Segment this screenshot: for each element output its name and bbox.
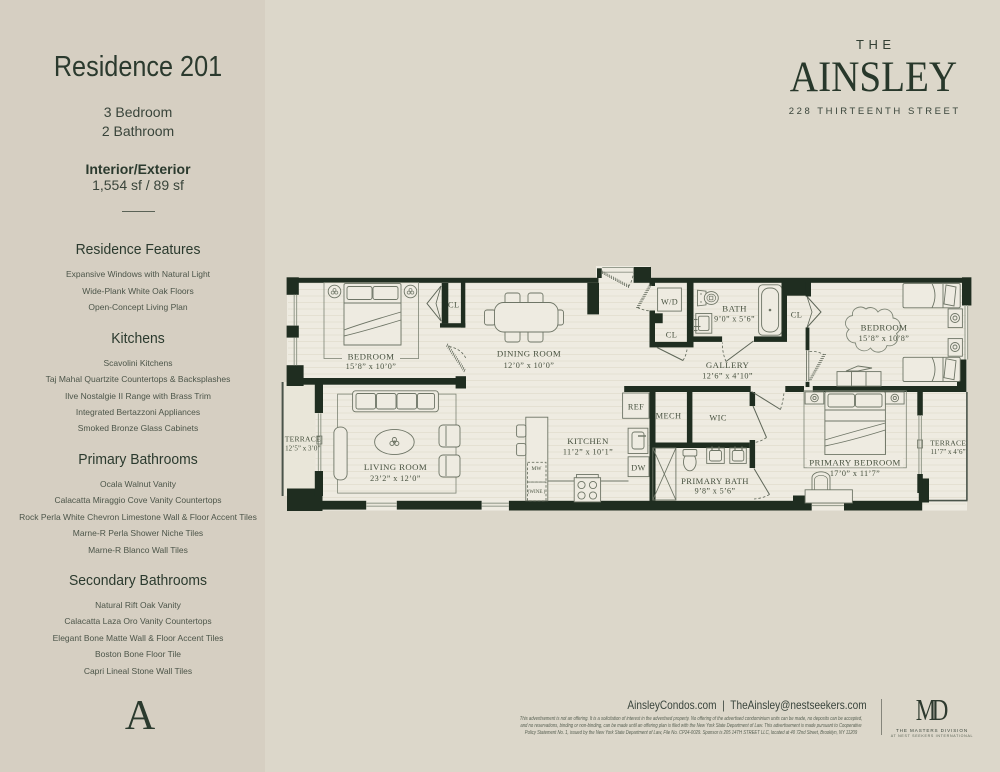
svg-text:TERRACE: TERRACE	[285, 435, 321, 444]
svg-text:12’0” x 10’0”: 12’0” x 10’0”	[504, 361, 555, 370]
svg-text:9’0” x 5’6”: 9’0” x 5’6”	[714, 315, 755, 324]
svg-text:W/D: W/D	[661, 298, 678, 307]
svg-text:MW: MW	[532, 466, 543, 472]
svg-text:MECH: MECH	[656, 412, 682, 421]
svg-text:KITCHEN: KITCHEN	[567, 436, 609, 446]
svg-text:DW: DW	[631, 464, 645, 473]
svg-text:DINING ROOM: DINING ROOM	[497, 349, 561, 359]
svg-text:11’7” x 4’6”: 11’7” x 4’6”	[931, 448, 966, 456]
svg-text:LIVING ROOM: LIVING ROOM	[364, 462, 427, 472]
svg-text:15’8” x 10’0”: 15’8” x 10’0”	[346, 362, 397, 371]
svg-text:CL: CL	[666, 331, 678, 340]
svg-text:PRIMARY BEDROOM: PRIMARY BEDROOM	[809, 458, 900, 468]
svg-text:15’8” x 10’8”: 15’8” x 10’8”	[859, 334, 910, 343]
svg-text:BEDROOM: BEDROOM	[861, 323, 908, 333]
svg-text:BEDROOM: BEDROOM	[348, 352, 395, 362]
svg-text:BATH: BATH	[722, 304, 747, 314]
svg-text:WIC: WIC	[709, 414, 726, 423]
svg-text:TERRACE: TERRACE	[930, 439, 966, 448]
svg-text:12’6” x 4’10”: 12’6” x 4’10”	[702, 372, 753, 381]
svg-text:9’8” x 5’6”: 9’8” x 5’6”	[695, 487, 736, 496]
svg-text:11’2” x 10’1”: 11’2” x 10’1”	[563, 448, 613, 457]
svg-text:23’2” x 12’0”: 23’2” x 12’0”	[370, 474, 421, 483]
svg-text:GALLERY: GALLERY	[706, 360, 750, 370]
svg-text:CL: CL	[448, 301, 460, 310]
svg-text:PRIMARY BATH: PRIMARY BATH	[681, 476, 749, 486]
svg-text:REF: REF	[628, 403, 644, 412]
svg-text:12’5” x 3’0”: 12’5” x 3’0”	[285, 445, 320, 453]
svg-text:CL: CL	[791, 311, 803, 320]
svg-text:(WINE ): (WINE )	[528, 490, 546, 495]
svg-text:17’0” x 11’7”: 17’0” x 11’7”	[830, 469, 880, 478]
